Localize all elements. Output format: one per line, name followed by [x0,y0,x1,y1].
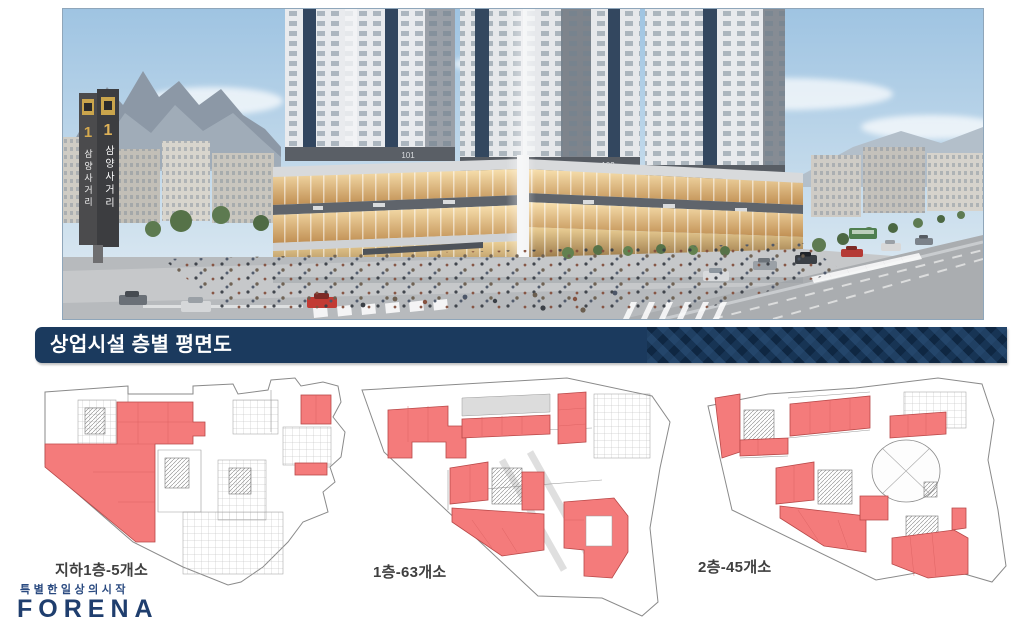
tower-102: 102 [460,9,640,171]
hero-rendering: 101 102 103 [62,8,984,320]
tower-101-label: 101 [401,151,415,160]
tower-101: 101 [285,9,455,161]
plan-label-level1: 1층-63개소 [373,561,447,582]
background-buildings-right [811,147,983,217]
brand-logo: FORENA [17,595,159,624]
tower-103: 103 [645,9,785,179]
banner-pattern-decor [647,327,1007,363]
hero-rendering-scene: 101 102 103 [63,9,983,319]
core-void [586,516,612,546]
signpost-name-2: 삼양사거리 [103,145,115,210]
brochure-slide: 101 102 103 [0,0,1035,635]
plan-label-level2: 2층-45개소 [698,556,772,577]
signpost-name: 삼양사거리 [83,149,93,209]
floor-plan-level1 [352,370,684,628]
sun-flare [506,9,536,271]
signpost-pylon: 1 1 삼양사거리 삼양사거리 [79,89,119,263]
plan-label-basement1: 지하1층-5개소 [55,559,148,580]
section-banner: 상업시설 층별 평면도 [35,327,1007,363]
signpost-number-2: 1 [104,122,113,139]
signpost-number: 1 [84,124,92,141]
section-title: 상업시설 층별 평면도 [50,327,232,363]
